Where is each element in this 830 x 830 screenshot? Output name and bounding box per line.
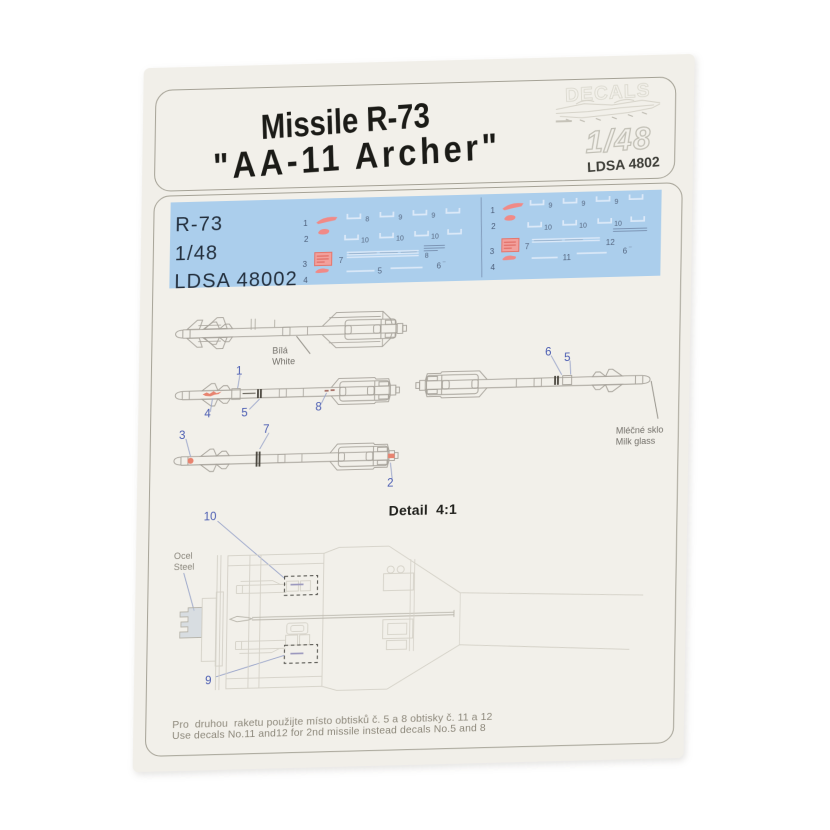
svg-text:10: 10 [544,225,552,232]
svg-text:4: 4 [303,276,308,285]
svg-text:11: 11 [563,253,572,262]
svg-text:9: 9 [431,213,435,220]
svg-text:3: 3 [303,260,308,269]
svg-text:9: 9 [398,214,402,221]
svg-text:10: 10 [614,221,622,228]
svg-text:10: 10 [396,235,404,242]
svg-text:9: 9 [614,199,618,206]
svg-text:1: 1 [490,206,495,215]
svg-text:2: 2 [304,235,309,244]
svg-text:7: 7 [339,256,344,265]
svg-text:10: 10 [431,233,439,240]
svg-text:12: 12 [606,238,616,247]
svg-text:5: 5 [377,266,382,275]
svg-text:3: 3 [490,247,495,256]
svg-text:1: 1 [303,219,308,228]
svg-text:10: 10 [579,223,587,230]
svg-text:4: 4 [490,263,495,272]
svg-text:8: 8 [365,216,369,223]
svg-text:6: 6 [436,261,441,270]
svg-text:9: 9 [581,201,585,208]
svg-text:8: 8 [425,253,429,260]
svg-text:6: 6 [623,247,628,256]
svg-text:9: 9 [548,203,552,210]
svg-text:7: 7 [525,242,530,251]
svg-text:2: 2 [491,222,496,231]
svg-text:10: 10 [361,237,369,244]
